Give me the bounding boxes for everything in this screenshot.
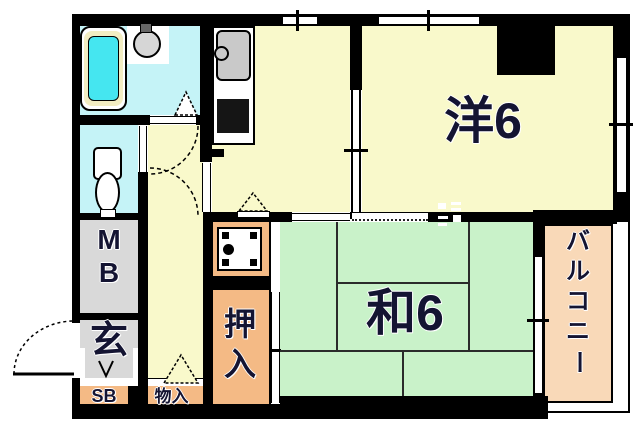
storage-label: 物入	[140, 388, 203, 405]
meter-box-label: M B	[81, 226, 137, 287]
storage-door-mark	[164, 355, 198, 383]
japanese-room-label: 和6	[340, 288, 470, 338]
closet-label: 押 入	[217, 308, 263, 380]
western-room-label: 洋6	[418, 96, 548, 146]
bathroom-door-mark	[175, 92, 197, 115]
door-swing-overlay	[0, 0, 640, 428]
shoe-box-label: SB	[80, 387, 128, 405]
floorplan-canvas: 洋6 和6 バ ル コ ニ ー 押 入 M B 玄 SB 物入	[0, 0, 640, 428]
washer-door-mark	[239, 193, 267, 211]
balcony-label: バ ル コ ニ ー	[558, 230, 598, 374]
entrance-label: 玄	[85, 322, 133, 360]
entrance-door-arc	[14, 321, 74, 374]
entrance-step-mark	[99, 361, 113, 376]
door-arc	[150, 168, 198, 216]
door-arc	[150, 126, 198, 174]
